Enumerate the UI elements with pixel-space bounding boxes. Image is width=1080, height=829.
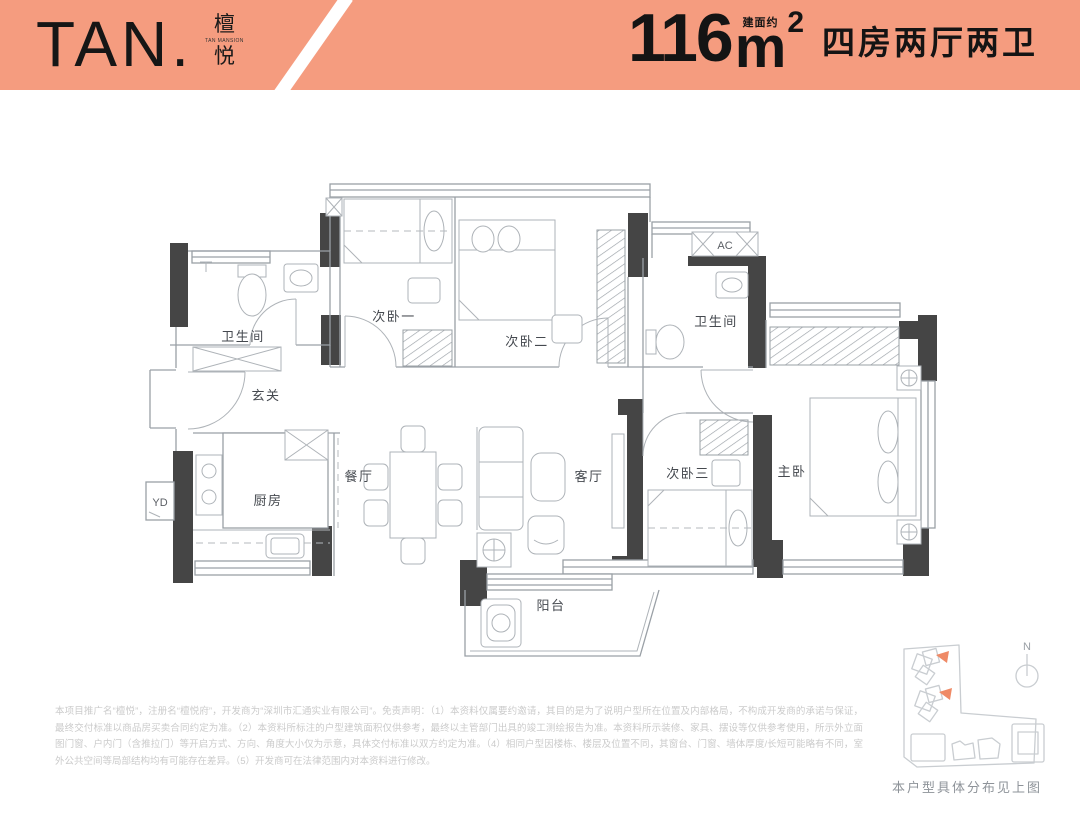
room-label-bedroom-2: 次卧二 bbox=[505, 334, 549, 349]
site-building bbox=[952, 741, 975, 760]
page: TAN. 檀 TAN MANSION 悦 116 建面约 m 2 四房两厅两卫 bbox=[0, 0, 1080, 829]
furniture-bedroom-1 bbox=[326, 198, 452, 303]
room-label-foyer: 玄关 bbox=[251, 388, 280, 403]
room-label-bedroom-3: 次卧三 bbox=[666, 466, 710, 481]
room-label-bathroom-right: 卫生间 bbox=[694, 314, 738, 329]
ac-unit: AC bbox=[692, 232, 758, 256]
room-label-kitchen: 厨房 bbox=[253, 493, 282, 508]
furniture-bedroom-2 bbox=[459, 220, 582, 343]
furniture-bathroom-left bbox=[200, 262, 318, 316]
site-building bbox=[911, 734, 945, 761]
room-label-bedroom-1: 次卧一 bbox=[372, 309, 416, 324]
furniture-balcony bbox=[481, 599, 521, 647]
furniture-foyer bbox=[193, 347, 281, 371]
room-label-dining: 餐厅 bbox=[344, 469, 373, 484]
site-map: N 本户型具体分布见上图 bbox=[892, 641, 1044, 795]
building-pinwheel bbox=[912, 648, 949, 684]
furniture-living bbox=[477, 427, 624, 567]
site-building bbox=[1012, 724, 1044, 762]
site-map-caption: 本户型具体分布见上图 bbox=[892, 780, 1042, 795]
disclaimer-text: 本项目推广名“檀悦”，注册名“檀悦府”，开发商为“深圳市汇通实业有限公司”。免责… bbox=[55, 704, 863, 770]
yd-box: YD bbox=[146, 482, 174, 520]
furniture-master-bedroom bbox=[810, 366, 921, 544]
room-label-master: 主卧 bbox=[777, 464, 806, 479]
compass-icon: N bbox=[1016, 641, 1038, 687]
compass-north-label: N bbox=[1023, 641, 1031, 653]
yd-label: YD bbox=[152, 497, 167, 509]
ac-label: AC bbox=[717, 240, 732, 252]
furniture-dining bbox=[364, 426, 462, 564]
room-label-bathroom-left: 卫生间 bbox=[221, 329, 265, 344]
room-label-living: 客厅 bbox=[574, 469, 603, 484]
site-building bbox=[978, 738, 1000, 759]
room-label-balcony: 阳台 bbox=[536, 598, 565, 613]
